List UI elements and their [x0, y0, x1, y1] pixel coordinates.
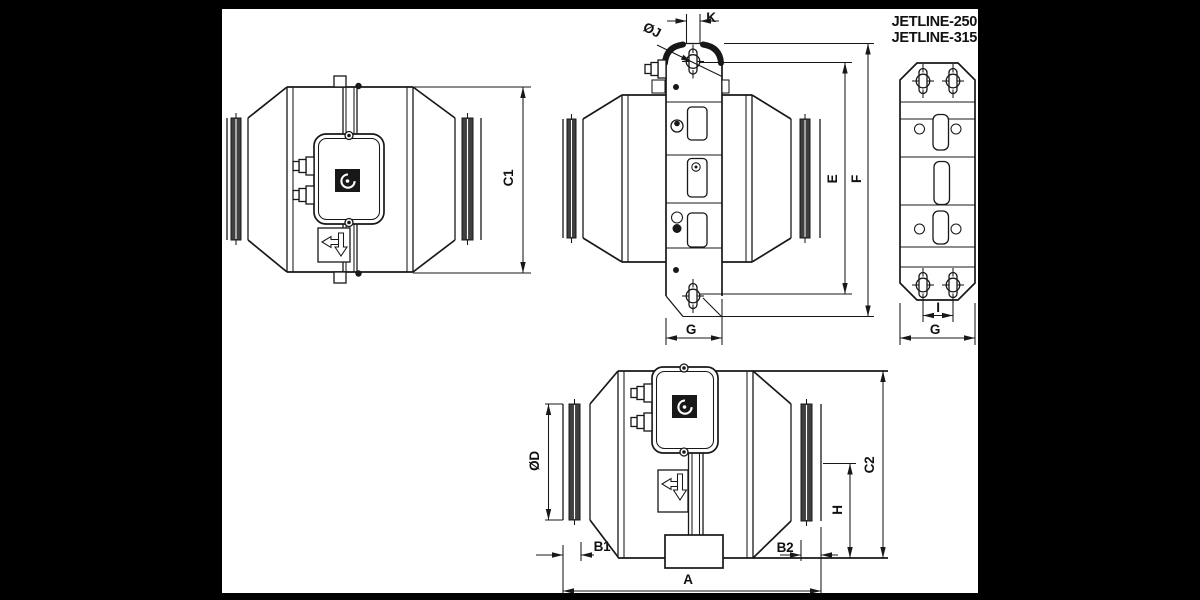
mounting-foot [665, 535, 723, 568]
label-g-front: G [930, 322, 940, 337]
model-name-1: JETLINE-250 [892, 14, 978, 30]
model-name-2: JETLINE-315 [892, 30, 978, 46]
label-f: F [849, 175, 864, 183]
label-g-side: G [686, 322, 696, 337]
label-b1: B1 [594, 539, 612, 554]
model-titles: JETLINE-250 JETLINE-315 [892, 14, 978, 46]
airflow-arrow-icon [318, 228, 350, 262]
label-a: A [683, 572, 693, 587]
technical-drawing: C1 [0, 0, 1200, 600]
label-b2: B2 [777, 540, 794, 555]
brand-logo-icon [335, 169, 360, 192]
label-c1: C1 [501, 169, 516, 187]
label-h: H [830, 505, 845, 515]
label-k: K [706, 10, 716, 25]
drawing-svg: C1 [0, 0, 1200, 600]
label-c2: C2 [862, 457, 877, 474]
label-d: ØD [527, 451, 542, 471]
drawing-canvas [222, 9, 978, 593]
airflow-arrow-icon [658, 470, 688, 512]
label-i: I [936, 300, 940, 315]
brand-logo-icon [672, 395, 697, 418]
label-e: E [825, 174, 840, 183]
